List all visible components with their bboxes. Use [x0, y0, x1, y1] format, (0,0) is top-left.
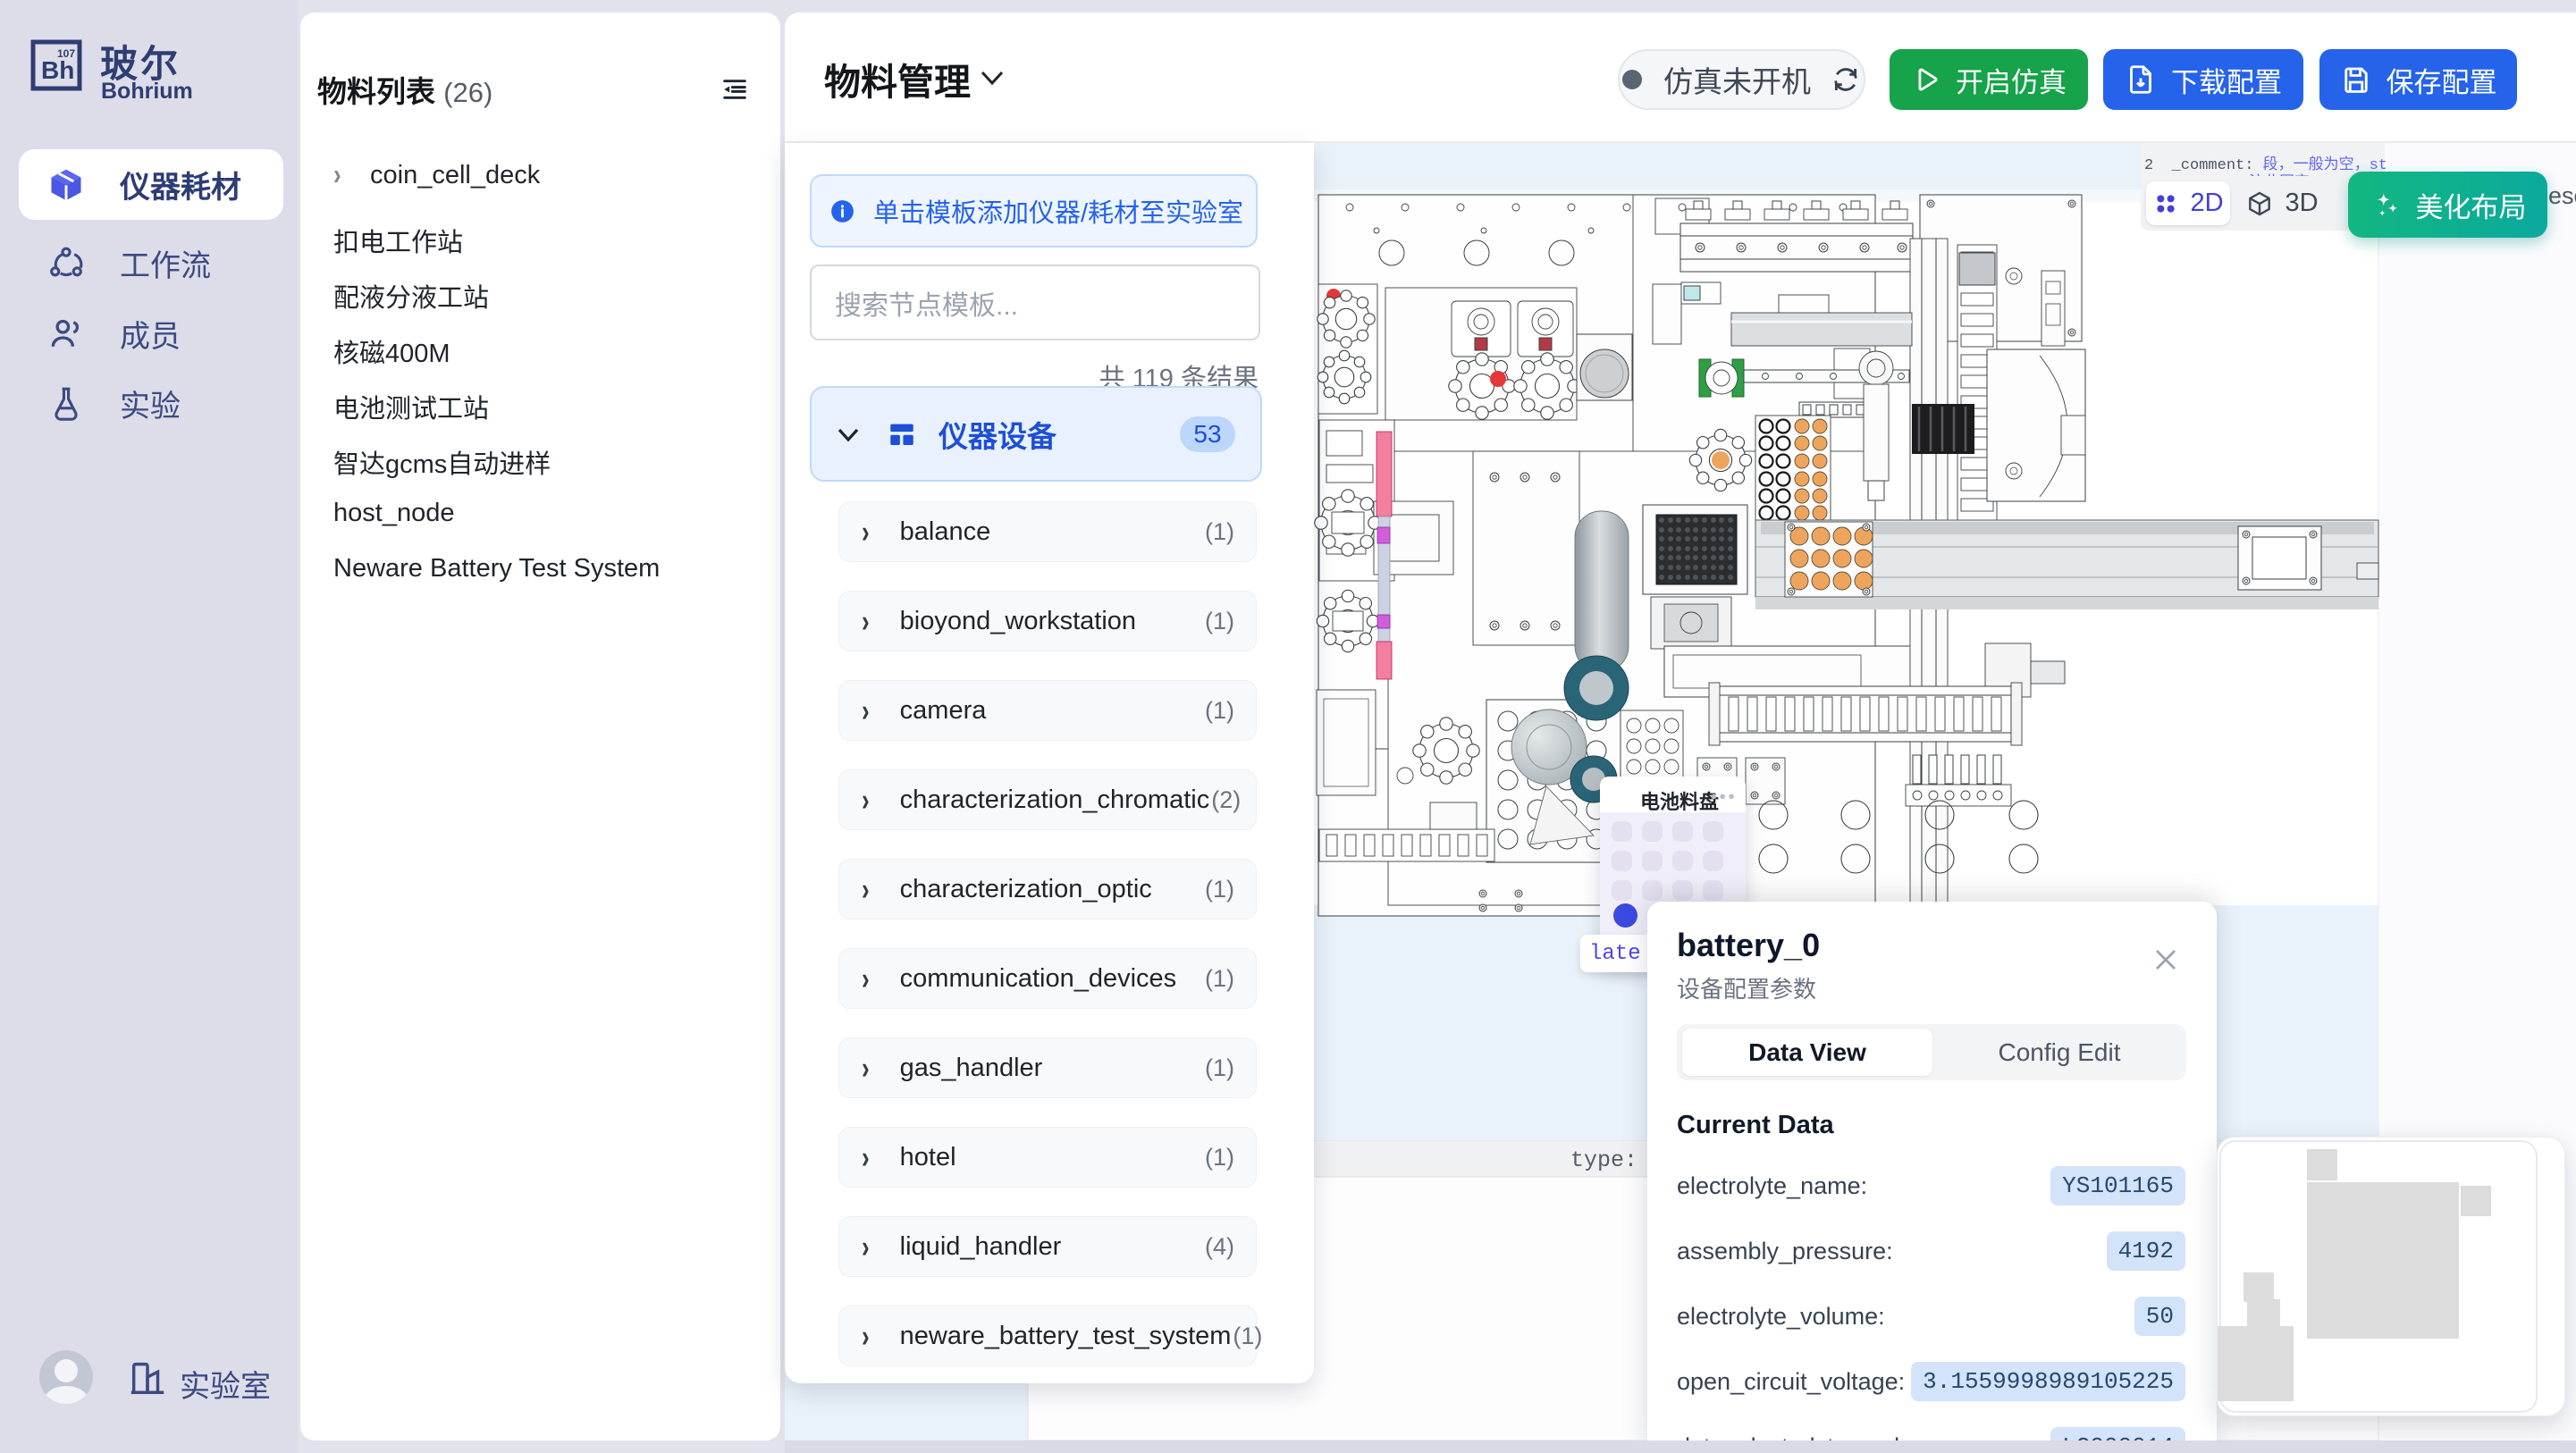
svg-text:107: 107 [57, 47, 75, 60]
svg-text:Bh: Bh [41, 56, 74, 84]
